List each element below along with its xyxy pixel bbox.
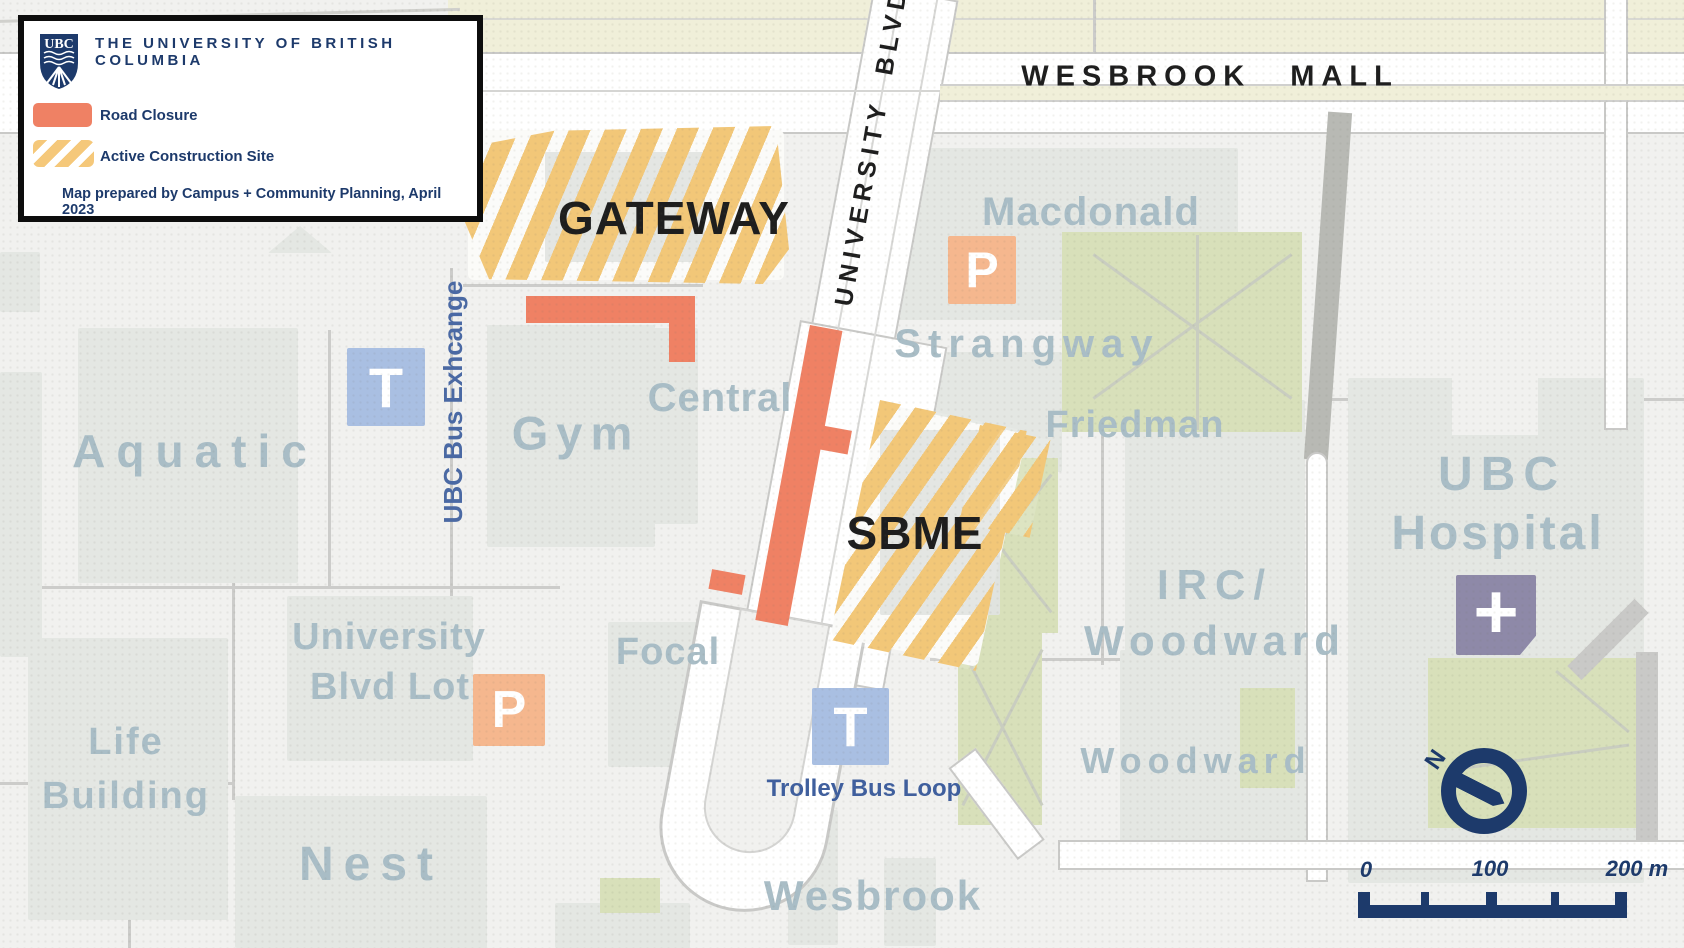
- label-lot-line2: Blvd Lot: [310, 668, 470, 706]
- scale-bar-tick: [1421, 892, 1429, 906]
- green-path: [1196, 235, 1199, 430]
- label-bus-exchange: UBC Bus Exhcange: [440, 281, 466, 524]
- label-wesbrook-bldg: Wesbrook: [764, 875, 982, 917]
- scale-label-end: 200 m: [1606, 856, 1668, 882]
- path-below-aquatic: [0, 586, 560, 589]
- site-label-gateway: GATEWAY: [558, 195, 790, 241]
- scale-bar-tick: [1486, 892, 1497, 918]
- street-label-wesbrook-mall: WESBROOK MALL: [1021, 63, 1399, 92]
- path-west-nest: [232, 550, 235, 800]
- road-closure-west-tab: [708, 569, 745, 595]
- hospital-icon: +: [1456, 575, 1536, 655]
- east-side-road: [1604, 0, 1628, 430]
- ubc-logo-text: UBC: [44, 37, 74, 52]
- transit-icon-letter: T: [369, 355, 403, 420]
- legend-panel: UBC THE UNIVERSITY OF BRITISH COLUMBIA R…: [18, 15, 483, 222]
- road-closure-label: Road Closure: [100, 107, 198, 124]
- building-west-edge: [0, 372, 42, 657]
- label-irc-line1: IRC/: [1157, 564, 1273, 606]
- legend-credit: Map prepared by Campus + Community Plann…: [62, 186, 477, 218]
- label-life-line2: Building: [42, 777, 210, 815]
- label-woodward: Woodward: [1080, 743, 1311, 779]
- transit-icon-letter: T: [833, 694, 867, 759]
- construction-swatch: [33, 140, 94, 167]
- road-closure-gateway-bar: [526, 296, 695, 323]
- scale-label-mid: 100: [1472, 856, 1509, 882]
- path-east-of-aquatic: [328, 330, 331, 588]
- label-gym: Gym: [512, 410, 641, 457]
- hospital-courtyard: [1452, 378, 1538, 435]
- road-closure-swatch: [33, 103, 92, 127]
- label-hospital-line1: UBC: [1438, 451, 1566, 499]
- sidewalk-line: [448, 18, 1684, 20]
- transit-icon: T: [812, 688, 889, 765]
- label-central: Central: [648, 378, 793, 418]
- hospital-icon-cross: +: [1473, 566, 1519, 657]
- label-aquatic: Aquatic: [72, 428, 318, 474]
- campus-map: WESBROOK MALL UNIVERSITY BLVD GATEWAY SB…: [0, 0, 1684, 948]
- parking-icon-letter: P: [965, 241, 998, 299]
- label-irc-line2: Woodward: [1084, 620, 1346, 662]
- transit-icon: T: [347, 348, 425, 426]
- label-life-line1: Life: [88, 723, 164, 761]
- label-trolley-bus-loop: Trolley Bus Loop: [767, 777, 962, 801]
- scale-label-start: 0: [1360, 857, 1372, 883]
- building-west-small: [0, 252, 40, 312]
- parking-icon-letter: P: [492, 680, 527, 740]
- green-small-bottom: [600, 878, 660, 913]
- scale-bar-cap: [1358, 892, 1370, 918]
- east-mall-road: [1306, 452, 1328, 882]
- parking-icon: P: [473, 674, 545, 746]
- label-strangway: Strangway: [894, 324, 1159, 364]
- scale-bar-cap: [1615, 892, 1627, 918]
- road-closure-gateway-tab: [669, 322, 695, 362]
- label-nest: Nest: [299, 841, 443, 889]
- east-edge-strip: [1636, 652, 1658, 850]
- label-focal: Focal: [616, 633, 720, 671]
- scale-bar-tick: [1551, 892, 1559, 906]
- building-triangle: [268, 226, 332, 253]
- construction-label: Active Construction Site: [100, 148, 274, 165]
- parking-icon: P: [948, 236, 1016, 304]
- label-friedman: Friedman: [1045, 406, 1224, 444]
- label-hospital-line2: Hospital: [1391, 510, 1604, 558]
- label-lot-line1: University: [292, 618, 486, 656]
- site-label-sbme: SBME: [847, 510, 984, 556]
- label-macdonald: Macdonald: [982, 192, 1200, 232]
- legend-org-title: THE UNIVERSITY OF BRITISH COLUMBIA: [95, 35, 477, 69]
- road-closure-east-tab: [818, 425, 852, 454]
- gateway-south-path: [463, 284, 703, 287]
- pedestrian-mall-strip: [1304, 112, 1352, 461]
- ubc-logo: UBC: [39, 33, 79, 90]
- north-boulevard-band: [448, 0, 1684, 54]
